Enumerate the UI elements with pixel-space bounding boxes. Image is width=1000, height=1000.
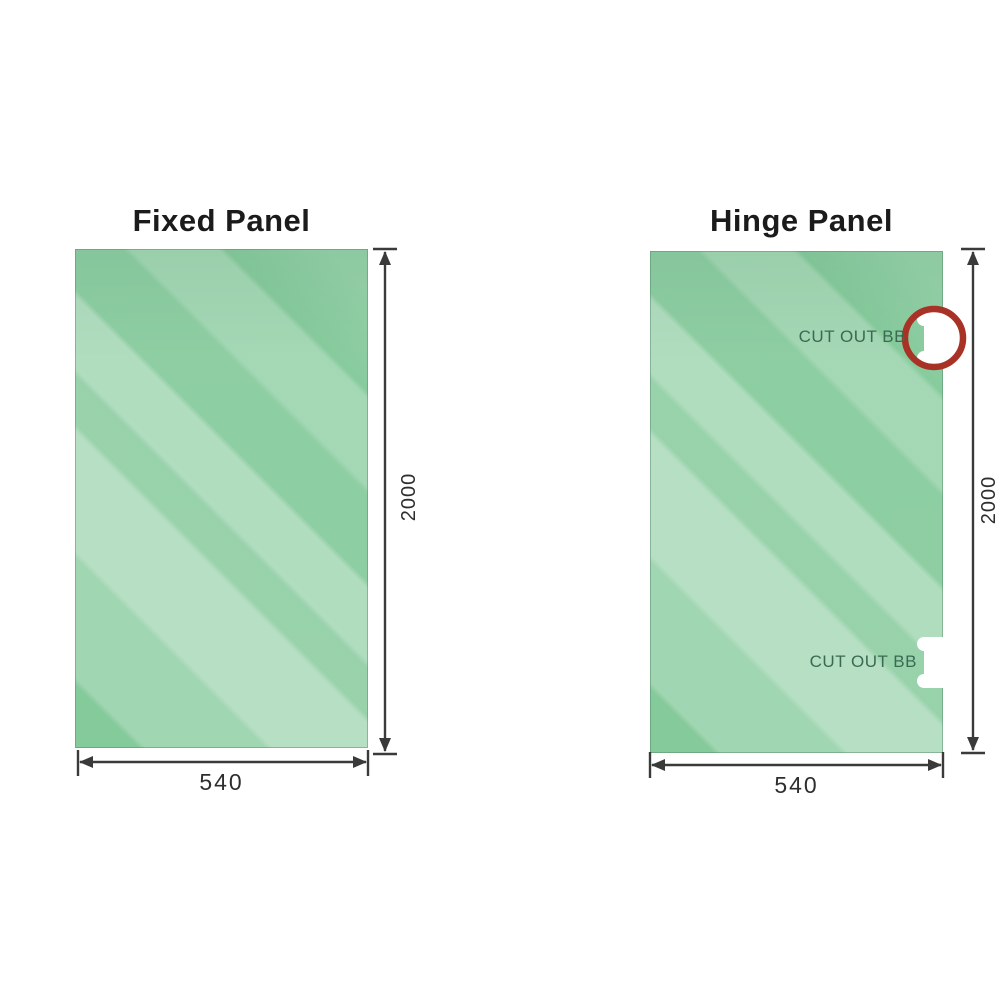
fixed-panel-height-dimension: [373, 249, 397, 754]
cutout-notch-bottom: [917, 637, 945, 688]
fixed-panel-width-dimension: [78, 750, 368, 776]
hinge-panel-height-dimension: [961, 249, 985, 753]
cutout-bb-label-top: CUT OUT BB: [746, 327, 906, 347]
diagram-linework: [0, 0, 1000, 1000]
cutout-bb-label-bottom: CUT OUT BB: [757, 652, 917, 672]
cutout-notch-top: [917, 311, 945, 366]
panel-spec-diagram: Fixed Panel 2000 540 Hinge Panel 2000 54…: [0, 0, 1000, 1000]
hinge-panel-width-dimension: [650, 752, 943, 778]
